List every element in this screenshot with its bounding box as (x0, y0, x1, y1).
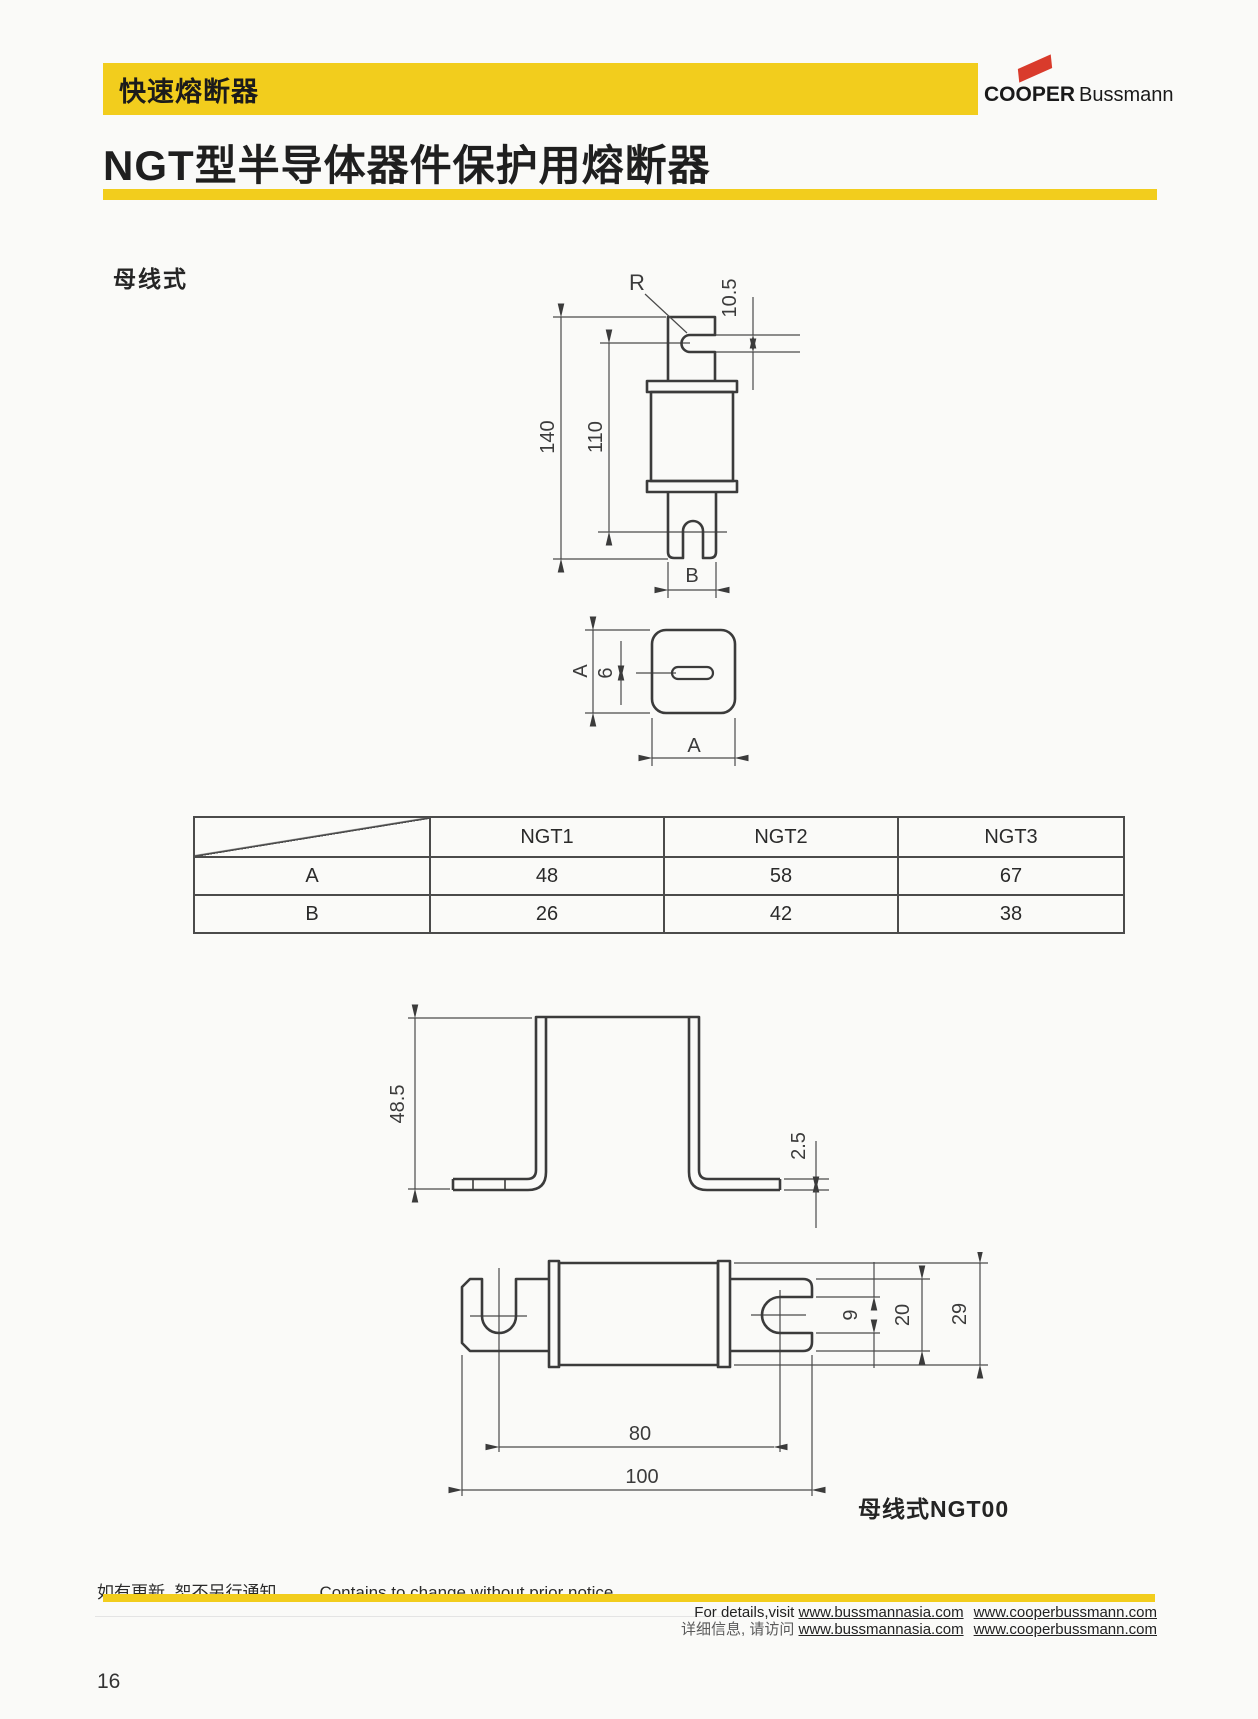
front-view-drawing: 140 110 10.5 R B (450, 245, 820, 610)
dim-140: 140 (537, 420, 559, 453)
cell-a-ngt2: 58 (664, 857, 898, 895)
bracket-side-view-drawing: 48.5 2.5 (385, 995, 890, 1255)
table-row: A 48 58 67 (194, 857, 1124, 895)
footer-links: For details,visit www.bussmannasia.comww… (681, 1605, 1157, 1638)
bussmannasia-link[interactable]: www.bussmannasia.com (799, 1604, 964, 1621)
ngt00-right-cap (718, 1261, 730, 1367)
dim-100: 100 (625, 1466, 658, 1488)
cell-a-ngt3: 67 (898, 857, 1124, 895)
table-row: B 26 42 38 (194, 895, 1124, 933)
dim-10-5: 10.5 (719, 279, 741, 318)
details-prefix-cn: 详细信息, 请访问 (681, 1621, 794, 1638)
dim-9: 9 (840, 1309, 862, 1320)
fuse-top-cap (647, 381, 737, 392)
page-title: NGT型半导体器件保护用熔断器 (103, 132, 711, 193)
dim-a-bottom: A (687, 735, 701, 757)
row-label-b: B (194, 895, 430, 933)
cell-b-ngt2: 42 (664, 895, 898, 933)
table-corner-cell (194, 817, 430, 857)
cooperbussmann-link[interactable]: www.cooperbussmann.com (974, 1621, 1157, 1638)
ngt00-left-cap (549, 1261, 559, 1367)
footer-links-line-cn: 详细信息, 请访问 www.bussmannasia.comwww.cooper… (681, 1622, 1157, 1639)
bracket-inner-left (453, 1017, 546, 1190)
dim-29: 29 (949, 1303, 971, 1325)
bracket-inner-right (689, 1017, 780, 1190)
bussmannasia-link[interactable]: www.bussmannasia.com (799, 1621, 964, 1638)
dim-80: 80 (629, 1423, 651, 1445)
dim-110: 110 (585, 421, 607, 453)
fuse-body (651, 392, 733, 481)
dim-a-side: A (570, 664, 592, 678)
footer-hairline (95, 1616, 755, 1617)
footer-links-line-en: For details,visit www.bussmannasia.comww… (681, 1605, 1157, 1622)
col-header-ngt2: NGT2 (664, 817, 898, 857)
col-header-ngt1: NGT1 (430, 817, 664, 857)
page-number: 16 (97, 1670, 120, 1694)
col-header-ngt3: NGT3 (898, 817, 1124, 857)
fuse-bottom-blade (668, 492, 716, 558)
cooperbussmann-link[interactable]: www.cooperbussmann.com (974, 1604, 1157, 1621)
table-header-row: NGT1 NGT2 NGT3 (194, 817, 1124, 857)
dim-2-5: 2.5 (788, 1132, 810, 1160)
fuse-bottom-cap (647, 481, 737, 492)
ngt00-view-drawing: 9 20 29 80 100 (430, 1252, 1010, 1512)
cell-a-ngt1: 48 (430, 857, 664, 895)
logo-bussmann-text: Bussmann (1079, 84, 1174, 106)
category-label: 快速熔断器 (119, 70, 259, 109)
footer-yellow-rule (103, 1594, 1155, 1602)
logo-red-flag-icon (1018, 54, 1052, 82)
ngt00-left-blade (462, 1279, 549, 1351)
dim-20: 20 (892, 1304, 914, 1326)
dim-b: B (685, 565, 698, 587)
bracket-outer-profile (453, 1017, 780, 1179)
ngt00-body (559, 1263, 718, 1365)
ngt00-caption: 母线式NGT00 (858, 1490, 1009, 1524)
bottom-view-drawing: A 6 A (540, 585, 790, 780)
cell-b-ngt1: 26 (430, 895, 664, 933)
fuse-top-blade (668, 317, 715, 381)
dim-6: 6 (595, 667, 617, 678)
cell-b-ngt3: 38 (898, 895, 1124, 933)
dimension-table: NGT1 NGT2 NGT3 A 48 58 67 B 26 42 38 (193, 816, 1125, 934)
cooper-bussmann-logo: COOPERBussmann (984, 55, 1184, 105)
fuse-base-square (652, 630, 735, 713)
section-label: 母线式 (113, 260, 188, 294)
logo-cooper-text: COOPER (984, 83, 1075, 106)
row-label-a: A (194, 857, 430, 895)
dim-48-5: 48.5 (387, 1085, 409, 1124)
title-underline (103, 189, 1157, 200)
fuse-base-slot (672, 667, 713, 679)
details-prefix-en: For details,visit (694, 1604, 794, 1621)
dim-r: R (629, 270, 645, 295)
category-bar: 快速熔断器 (103, 63, 978, 115)
